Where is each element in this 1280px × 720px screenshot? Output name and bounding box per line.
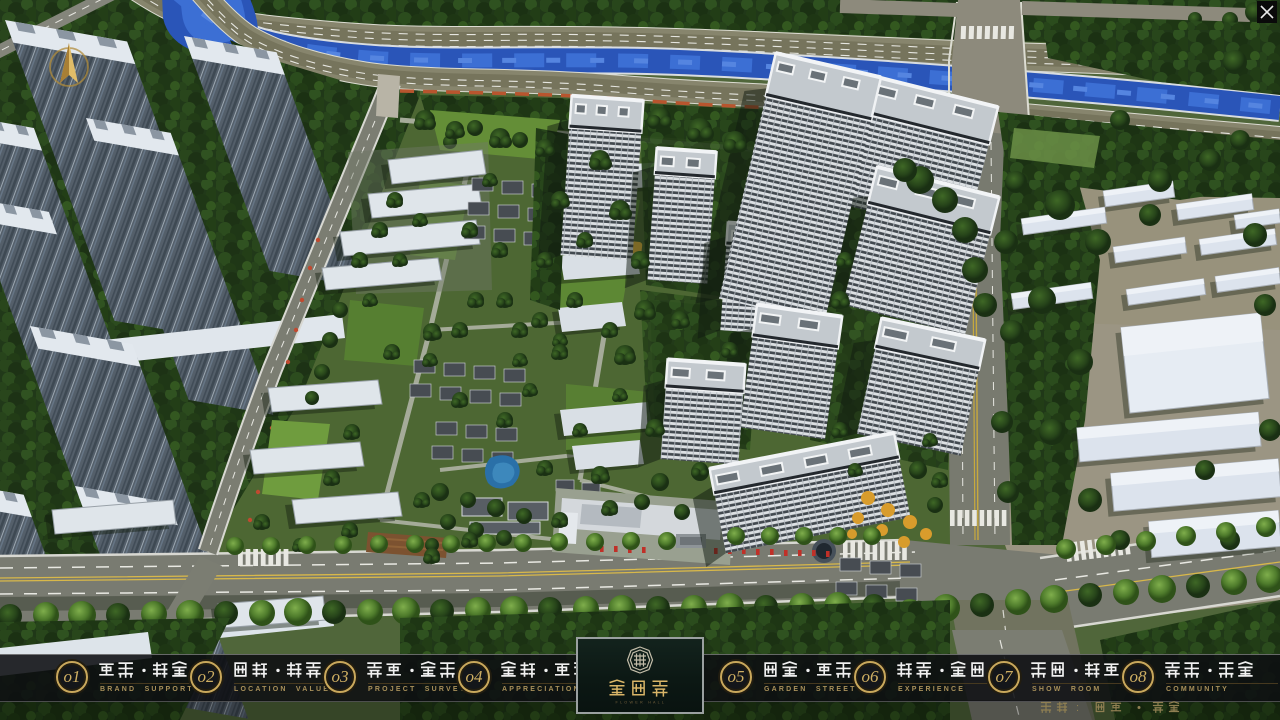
svg-text::: : [1076,702,1079,714]
